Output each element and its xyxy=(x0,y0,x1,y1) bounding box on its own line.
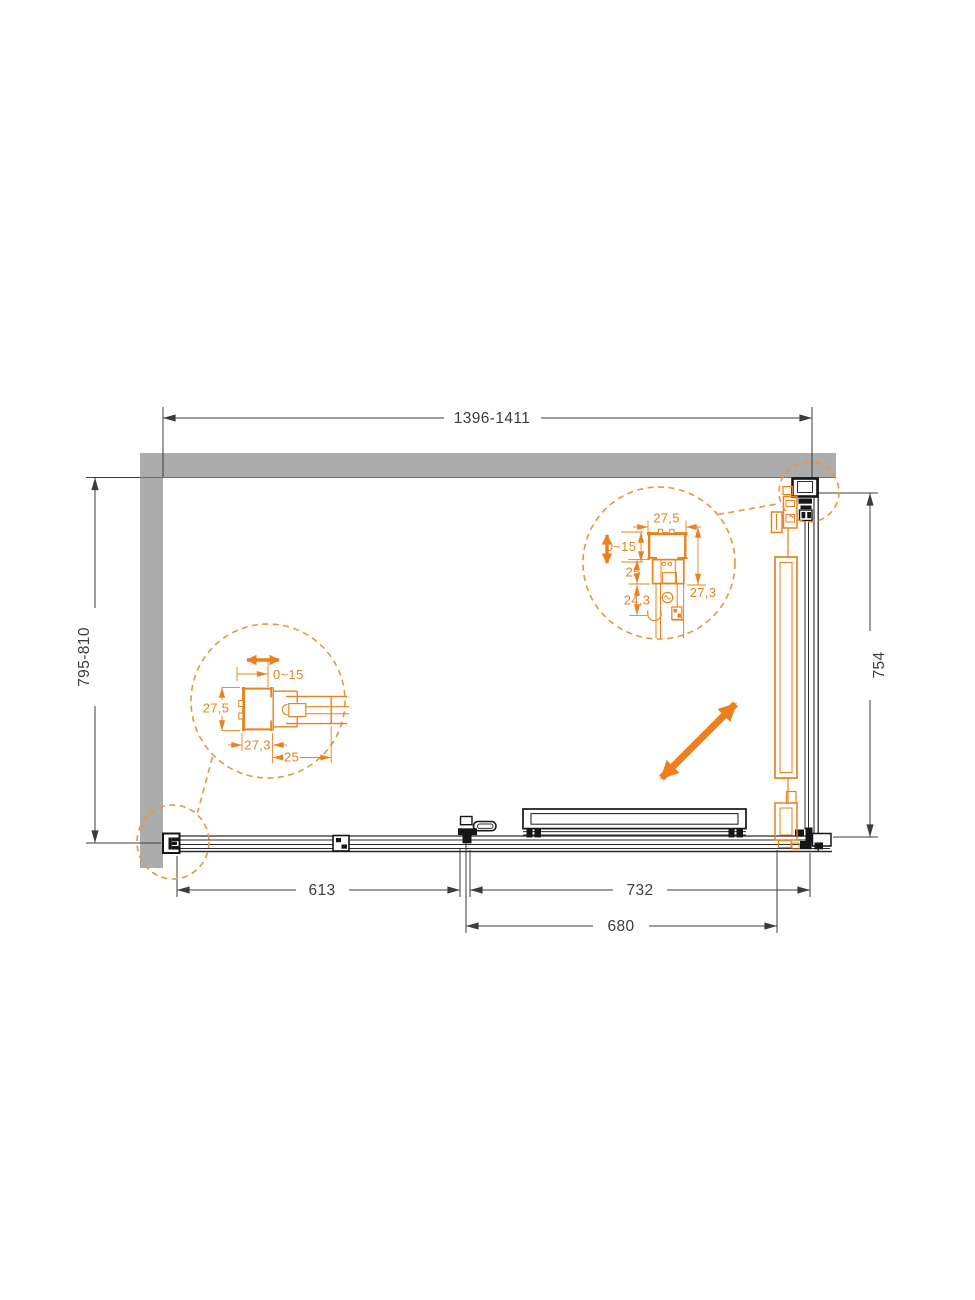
wall-profile-section xyxy=(239,687,349,731)
hook-curve xyxy=(648,611,661,621)
clip-mark xyxy=(668,562,672,566)
side-door-glass xyxy=(780,563,792,773)
bracket-detail xyxy=(342,845,348,849)
detail-label-insert-depth: 25 xyxy=(625,565,640,580)
profile-insert xyxy=(172,838,180,842)
profile-insert xyxy=(172,842,177,845)
profile-notch xyxy=(670,529,674,533)
wall-profile-section xyxy=(647,529,688,639)
dimension-label-total-width: 1396-1411 xyxy=(454,410,531,427)
technical-drawing-page: 1396-1411 795-810 754 613 732 680 xyxy=(0,0,975,1300)
profile-insert xyxy=(799,499,813,504)
insert-slot xyxy=(663,573,677,584)
side-panel-assembly xyxy=(772,478,832,852)
detail-leader-line xyxy=(198,757,213,813)
profile-insert xyxy=(169,838,172,850)
dimension-label-door-segment: 732 xyxy=(626,882,653,899)
left-wall xyxy=(140,453,163,868)
door-foot xyxy=(737,829,744,838)
dimension-door-glass: 680 xyxy=(466,850,777,935)
dimension-fixed-segment: 613 xyxy=(177,849,460,899)
detail-label-profile-width: 27,3 xyxy=(244,738,271,753)
dimension-label-fixed-segment: 613 xyxy=(308,882,335,899)
detail-label-profile-depth: 27,3 xyxy=(690,585,717,600)
side-sliding-door-highlight xyxy=(772,487,800,850)
carriage-detail xyxy=(678,614,681,618)
left-wall-profile xyxy=(163,834,180,854)
door-foot xyxy=(729,829,735,838)
clip-mark xyxy=(662,562,666,566)
carriage-detail xyxy=(674,609,677,612)
door-panel-outer xyxy=(523,809,746,829)
dimension-side-panel: 754 xyxy=(816,493,888,837)
detail-label-profile-depth: 27,5 xyxy=(203,701,230,716)
detail-label-adjustment: 0~15 xyxy=(606,539,636,554)
dimension-label-door-glass: 680 xyxy=(607,918,634,935)
detail-label-insert-width: 25 xyxy=(284,750,299,765)
bottom-corner-assembly xyxy=(795,828,831,850)
profile-insert-detail xyxy=(807,512,811,518)
corner-detail xyxy=(800,841,812,849)
top-cap xyxy=(783,487,793,495)
bracket-detail xyxy=(336,838,341,842)
side-door-outer xyxy=(775,557,797,778)
dimension-label-side-panel: 754 xyxy=(871,651,888,678)
detail-label-profile-width: 27,5 xyxy=(653,511,680,526)
dimension-label-total-depth: 795-810 xyxy=(76,627,93,687)
bottom-hanger xyxy=(775,803,797,840)
bottom-hanger-inner xyxy=(780,808,792,835)
glass-slot xyxy=(289,704,306,717)
fixed-glass-bracket xyxy=(333,836,349,852)
door-foot xyxy=(527,829,533,838)
shower-enclosure-drawing: 1396-1411 795-810 754 613 732 680 xyxy=(0,0,975,1300)
sliding-door-panel xyxy=(523,809,746,837)
profile-insert xyxy=(801,506,812,510)
corner-detail xyxy=(806,828,813,844)
door-foot xyxy=(535,829,542,838)
guide-clamp xyxy=(458,828,477,835)
detail-left-dims: 27,5 27,3 25 xyxy=(203,687,331,765)
detail-leader-line xyxy=(718,504,780,515)
guide-clamp xyxy=(463,835,472,843)
profile-notch xyxy=(239,713,243,719)
door-guide-roller xyxy=(458,817,496,844)
top-hanger-detail xyxy=(786,501,795,507)
profile-notch xyxy=(239,701,243,707)
walls xyxy=(140,453,836,868)
front-rail-assembly xyxy=(163,809,832,853)
guide-block xyxy=(461,817,473,825)
detail-label-adjustment: 0~15 xyxy=(273,667,303,682)
profile-notch xyxy=(659,529,663,533)
profile-insert xyxy=(172,846,180,850)
clip-mark xyxy=(282,705,287,715)
corner-detail xyxy=(815,843,824,850)
profile-insert-detail xyxy=(802,512,806,518)
slide-direction-arrow-icon xyxy=(662,704,736,778)
top-wall xyxy=(140,453,836,478)
detail-label-carriage-depth: 24,3 xyxy=(624,593,651,608)
